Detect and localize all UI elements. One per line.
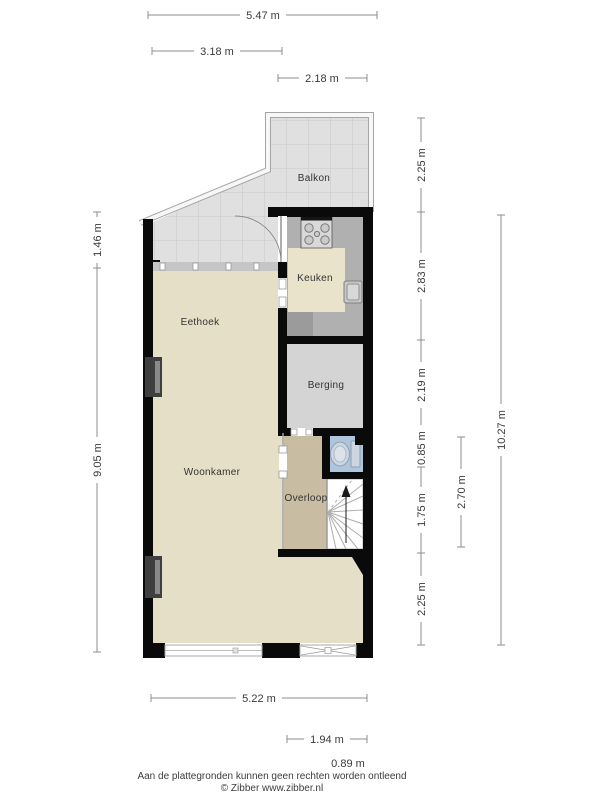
shaft (355, 432, 365, 445)
svg-text:5.47 m: 5.47 m (246, 10, 280, 22)
wall-bottom-mid (262, 643, 300, 658)
opening-eethoek-keuken (278, 278, 287, 308)
dim-bottom-1: 5.22 m (151, 691, 367, 705)
svg-text:10.27 m: 10.27 m (496, 410, 508, 450)
opening-overloop-berging (291, 428, 313, 436)
room-label-woonkamer: Woonkamer (184, 467, 241, 478)
dim-right-6: 2.25 m (415, 553, 429, 645)
svg-text:3.18 m: 3.18 m (200, 46, 234, 58)
room-label-eethoek: Eethoek (181, 317, 220, 328)
svg-text:0.85 m: 0.85 m (416, 431, 428, 465)
svg-text:2.83 m: 2.83 m (416, 259, 428, 293)
wall-bottom-right (356, 643, 373, 658)
svg-text:1.75 m: 1.75 m (416, 493, 428, 527)
room-label-balkon: Balkon (298, 173, 330, 184)
sink-icon (344, 281, 362, 303)
wall-toilet-left (322, 428, 330, 472)
floorplan-page: Balkon Keuken Eethoek Berging Woonkamer … (0, 0, 600, 800)
dim-right-2: 2.83 m (415, 212, 429, 340)
svg-text:1.46 m: 1.46 m (92, 223, 104, 257)
room-label-overloop: Overloop (285, 493, 328, 504)
wall-bottom-left (143, 643, 165, 658)
window-band-terras (153, 262, 278, 271)
radiator-top (145, 357, 162, 397)
french-doors (300, 645, 356, 656)
wall-stairs-bottom (278, 549, 352, 557)
room-label-berging: Berging (308, 380, 345, 391)
dim-right-7: 2.70 m (455, 437, 469, 547)
wall-toilet-bottom (322, 472, 373, 479)
dim-bottom-2: 1.94 m (287, 732, 367, 746)
wall-keuken-berging (278, 336, 363, 344)
dim-top-3: 2.18 m (278, 71, 367, 85)
radiator-bottom (145, 556, 162, 598)
opening-woonkamer-overloop (279, 446, 287, 478)
svg-text:9.05 m: 9.05 m (92, 443, 104, 477)
stairs (327, 479, 363, 549)
dim-left-2: 9.05 m (91, 268, 105, 652)
svg-text:2.70 m: 2.70 m (456, 475, 468, 509)
svg-text:0.89 m: 0.89 m (331, 758, 365, 770)
room-label-keuken: Keuken (297, 273, 333, 284)
dim-top-1: 5.47 m (148, 8, 377, 22)
floor-plan-svg: Balkon Keuken Eethoek Berging Woonkamer … (0, 0, 600, 800)
svg-text:2.18 m: 2.18 m (305, 73, 339, 85)
dim-right-8: 10.27 m (495, 215, 509, 645)
svg-text:2.25 m: 2.25 m (416, 148, 428, 182)
dim-bottom-3: 0.89 m (325, 756, 371, 770)
footer-copyright: © Zibber www.zibber.nl (221, 783, 323, 794)
stove-icon (301, 217, 332, 248)
window-bottom (165, 645, 262, 656)
svg-text:2.25 m: 2.25 m (416, 582, 428, 616)
footer-disclaimer: Aan de plattegronden kunnen geen rechten… (137, 771, 406, 782)
dim-right-5: 1.75 m (415, 467, 429, 553)
svg-text:1.94 m: 1.94 m (310, 734, 344, 746)
kitchen-cabinet (287, 311, 313, 336)
svg-text:5.22 m: 5.22 m (242, 693, 276, 705)
svg-text:2.19 m: 2.19 m (416, 368, 428, 402)
dim-right-3: 2.19 m (415, 340, 429, 430)
dim-left-1: 1.46 m (91, 212, 105, 268)
dim-top-2: 3.18 m (152, 44, 282, 58)
dim-right-1: 2.25 m (415, 118, 429, 212)
dim-right-4: 0.85 m (415, 425, 429, 471)
